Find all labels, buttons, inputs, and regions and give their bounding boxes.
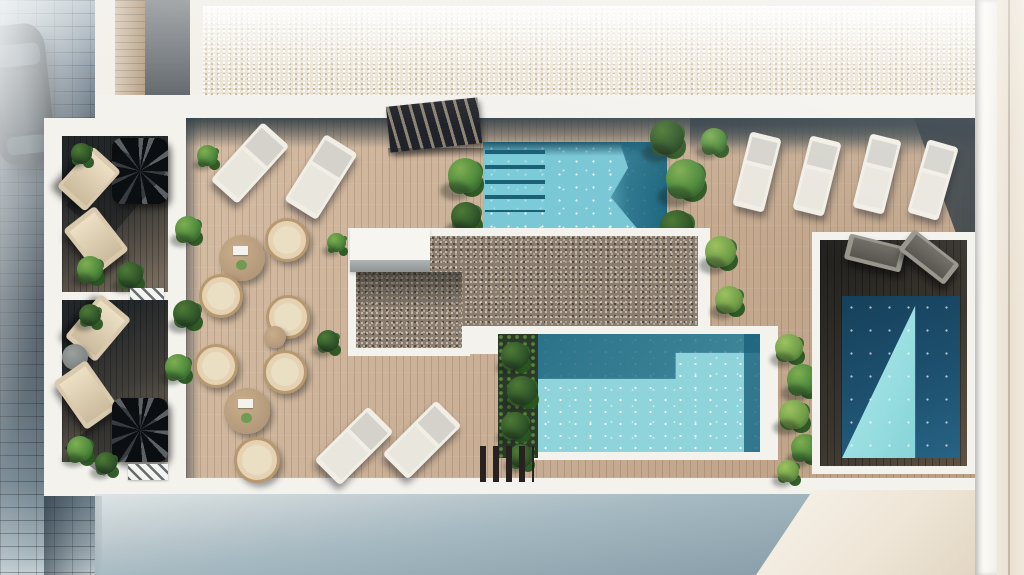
plant [648,118,688,158]
private-pool [842,296,960,458]
wall-beige [997,0,1024,575]
plant [714,284,746,316]
roof-walkway-wood [115,0,145,97]
rattan-chair [234,437,280,483]
plant [500,340,532,372]
plant [326,232,348,254]
plant [70,142,94,166]
rooftop-terrace-render [0,0,1024,575]
dining-table [224,388,270,434]
plant [700,126,730,156]
plant [174,214,204,244]
plant [76,254,106,284]
roof-gray-panel [145,0,190,98]
gravel-center [430,236,698,326]
side-table [264,326,286,348]
rattan-chair [265,218,309,262]
pool-main [538,334,760,452]
plant [94,450,120,476]
plant [78,302,104,328]
plant [500,410,532,442]
plant [778,398,812,432]
plant [164,352,194,382]
plant [316,328,342,354]
vent-grate [128,464,168,480]
rattan-chair [199,274,243,318]
skylight-box [350,228,430,272]
plant [116,260,146,290]
plant [172,298,204,330]
roof-gravel-area [203,6,977,96]
plant [196,144,220,168]
plant [506,374,540,408]
rattan-chair [194,344,238,388]
plant [774,332,806,364]
pool-steps-slats [480,446,534,482]
skylight-edge [350,260,430,272]
pool-top [483,142,667,228]
wall-white [975,0,997,575]
plant [664,156,710,202]
street-shadow-bottom [44,496,102,575]
stair-access [386,97,482,152]
plant [776,458,802,484]
pool-steps [485,150,545,212]
plant [446,156,486,196]
plant [66,434,96,464]
plant [704,234,740,270]
gravel-shadow [356,272,462,306]
rattan-chair [263,350,307,394]
vent-grate [130,288,164,300]
